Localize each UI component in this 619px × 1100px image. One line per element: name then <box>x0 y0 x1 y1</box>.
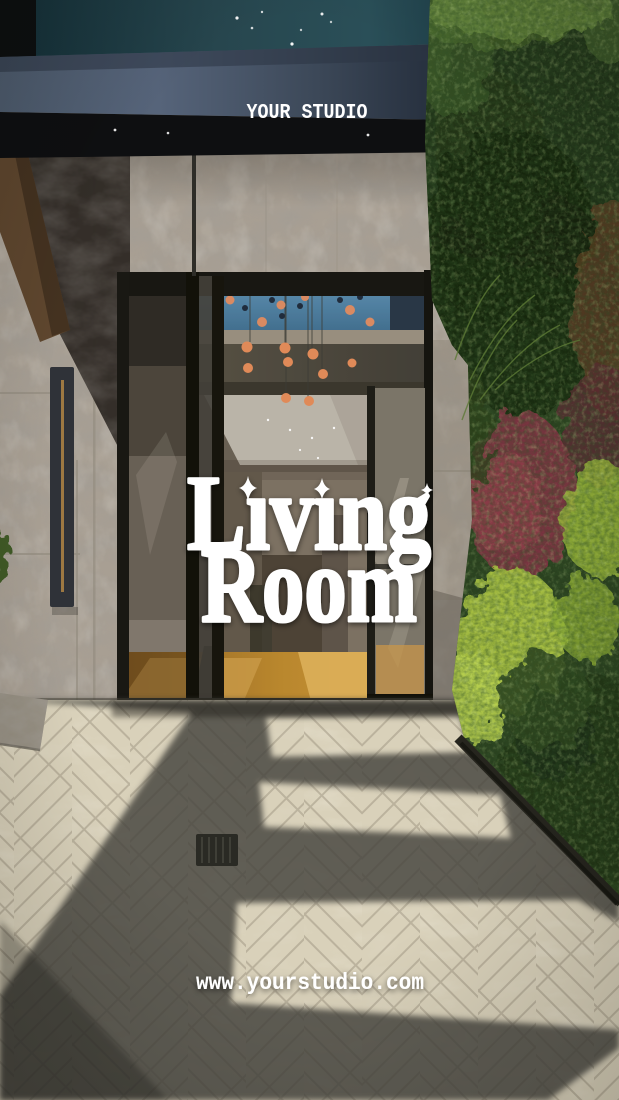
svg-text:Room: Room <box>201 527 417 645</box>
svg-text:www.yourstudio.com: www.yourstudio.com <box>196 970 424 997</box>
svg-text:YOUR STUDIO: YOUR STUDIO <box>247 102 368 125</box>
